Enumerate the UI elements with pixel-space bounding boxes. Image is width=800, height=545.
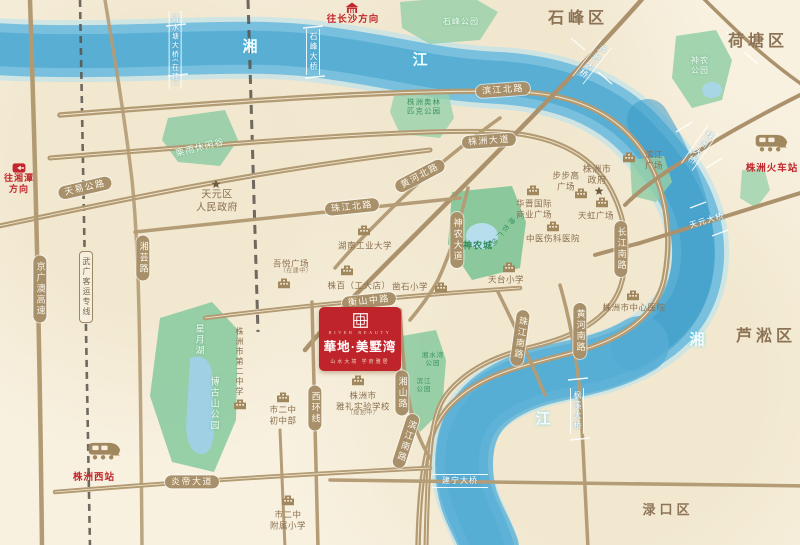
road-label-xihuan: 西环线	[308, 386, 321, 431]
star-icon-zhuzhou-gov	[595, 187, 604, 196]
building-icon-huajin	[526, 184, 541, 196]
district-label-lusong: 芦淞区	[736, 327, 796, 347]
building-icon-yali	[351, 374, 366, 386]
park-label-bogushan: 博古山公园	[208, 377, 219, 432]
bridge-label-jianning: 建宁大桥	[432, 474, 488, 488]
river-label-xiang-north: 湘	[242, 39, 257, 58]
poi-label-changsha: 往长沙方向	[327, 15, 380, 27]
road-label-jingguangao: 京广澳高速	[33, 256, 46, 323]
river-label-xiang-east: 湘	[689, 332, 704, 351]
poi-label-tiantai: 天台小学	[488, 275, 524, 286]
building-icon-tiantai	[502, 261, 517, 273]
poi-label-yali-note: （规划中）	[347, 410, 380, 418]
poi-label-zhuzhou-gov: 株洲市政府	[583, 164, 612, 187]
building-icon-wuyue	[277, 277, 292, 289]
poi-label-hnut: 湖南工业大学	[338, 241, 392, 252]
park-label-binjiangpark: 滨江公园	[417, 378, 432, 394]
rail-label-wuguang: 武广客运专线	[79, 251, 93, 323]
bridge-label-fengxi: 枫溪大桥	[570, 388, 584, 434]
project-card[interactable]: RIVER BEAUTY 華地·美墅湾 山水大境 学府雅居	[319, 307, 401, 371]
train-icon-station	[753, 133, 789, 153]
map-canvas: RIVER BEAUTY 華地·美墅湾 山水大境 学府雅居 天易公路京广澳高速武…	[0, 0, 800, 545]
district-label-shifeng: 石峰区	[548, 9, 608, 29]
road-label-shennongdadao: 神农大道	[450, 212, 463, 268]
poi-label-tianhong: 天虹广场	[578, 211, 614, 222]
road-label-xiangyun: 湘芸路	[136, 236, 149, 281]
poi-label-zhubai: 株百（工大店）	[327, 281, 390, 292]
train-icon-west-station	[86, 441, 122, 461]
poi-label-wuyue-note: （在建中）	[280, 268, 313, 276]
district-label-lukou: 渌口区	[642, 502, 693, 518]
building-icon-no2primary	[281, 494, 296, 506]
park-label-shennongpark: 神农公园	[691, 56, 709, 76]
poi-label-no2junior: 市二中初中部	[269, 404, 296, 425]
poi-label-xiangtan: 往湘潭方向	[4, 173, 34, 196]
road-label-xiangshan: 湘山路	[395, 371, 408, 416]
poi-label-station: 株洲火车站	[746, 164, 799, 176]
building-icon-zhongyi	[546, 220, 561, 232]
building-icon-no2	[233, 398, 248, 410]
road-label-changjiangnan: 长江南路	[614, 221, 627, 277]
park-label-xiangshuiwan: 湘水湾公园	[422, 352, 445, 368]
poi-label-west-station: 株洲西站	[73, 473, 115, 485]
building-icon-binjiangsq	[622, 151, 637, 163]
building-icon-no2junior	[276, 391, 291, 403]
road-label-yandi: 炎帝大道	[165, 475, 219, 488]
bridge-label-shifeng: 石峰大桥	[306, 29, 320, 75]
river-label-jiang-north: 江	[412, 52, 427, 71]
river-label-jiang-south: 江	[535, 411, 550, 430]
building-icon-hnut	[357, 224, 372, 236]
poi-label-no2: 株洲市第二中学	[234, 327, 244, 397]
poi-label-zaoshi: 凿石小学	[392, 282, 428, 293]
star-icon-tianyuan-gov	[212, 180, 221, 189]
road-label-huanghenan: 黄河南路	[573, 303, 586, 359]
poi-label-center-hospital: 株洲市中心医院	[602, 303, 665, 314]
poi-label-yali: 株洲市雅礼实验学校	[336, 390, 390, 411]
building-icon-zhubai	[340, 264, 355, 276]
poi-label-bubugao: 步步高广场	[552, 170, 579, 191]
park-label-olympic: 株洲奥林匹克公园	[407, 98, 441, 117]
bridge-label-qingshuitang: 清水塘大桥(在建)	[169, 11, 182, 89]
poi-label-no2primary: 市二中附属小学	[270, 509, 306, 530]
project-english-name: RIVER BEAUTY	[329, 330, 392, 335]
district-label-hetang: 荷塘区	[728, 32, 788, 52]
poi-label-huajin: 华晋国际商业广场	[516, 198, 552, 219]
poi-label-tianyuan-gov: 天元区人民政府	[196, 190, 238, 215]
poi-label-binjiangsq: 滨江广场	[645, 149, 663, 170]
building-icon-tianhong	[595, 196, 610, 208]
project-slogan: 山水大境 学府雅居	[330, 358, 389, 365]
building-icon-zaoshi	[434, 281, 449, 293]
building-icon-center-hospital	[626, 289, 641, 301]
poi-label-zhongyi: 中医伤科医院	[526, 234, 580, 245]
red-building-icon-changsha	[346, 3, 359, 14]
park-label-xingyue: 星月湖	[193, 324, 204, 357]
project-logo-icon	[353, 313, 368, 328]
park-label-shifengpark: 石峰公园	[443, 17, 479, 27]
project-title: 華地·美墅湾	[324, 336, 397, 355]
